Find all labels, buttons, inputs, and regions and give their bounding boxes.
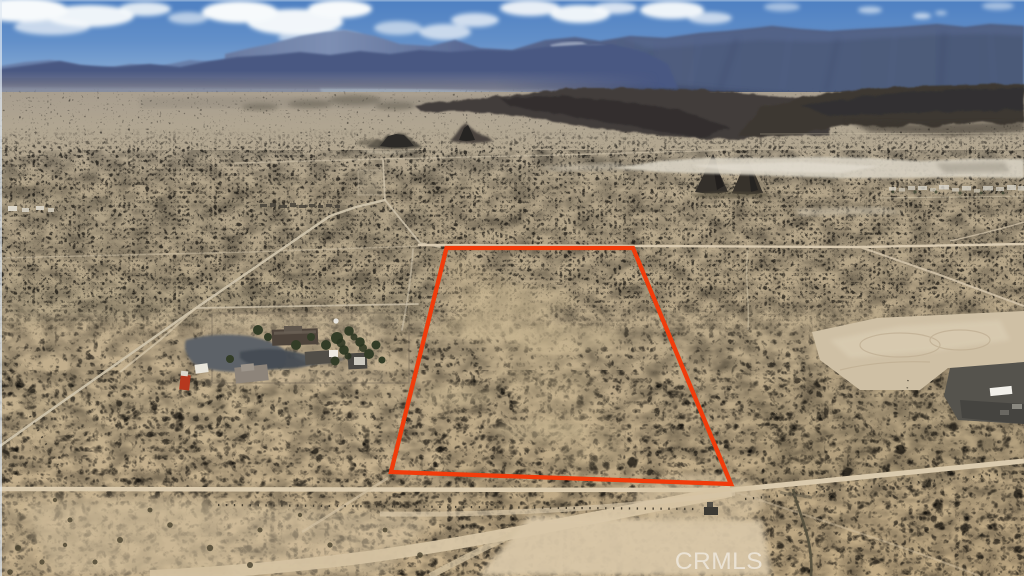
svg-text:CRMLS: CRMLS xyxy=(675,548,763,575)
